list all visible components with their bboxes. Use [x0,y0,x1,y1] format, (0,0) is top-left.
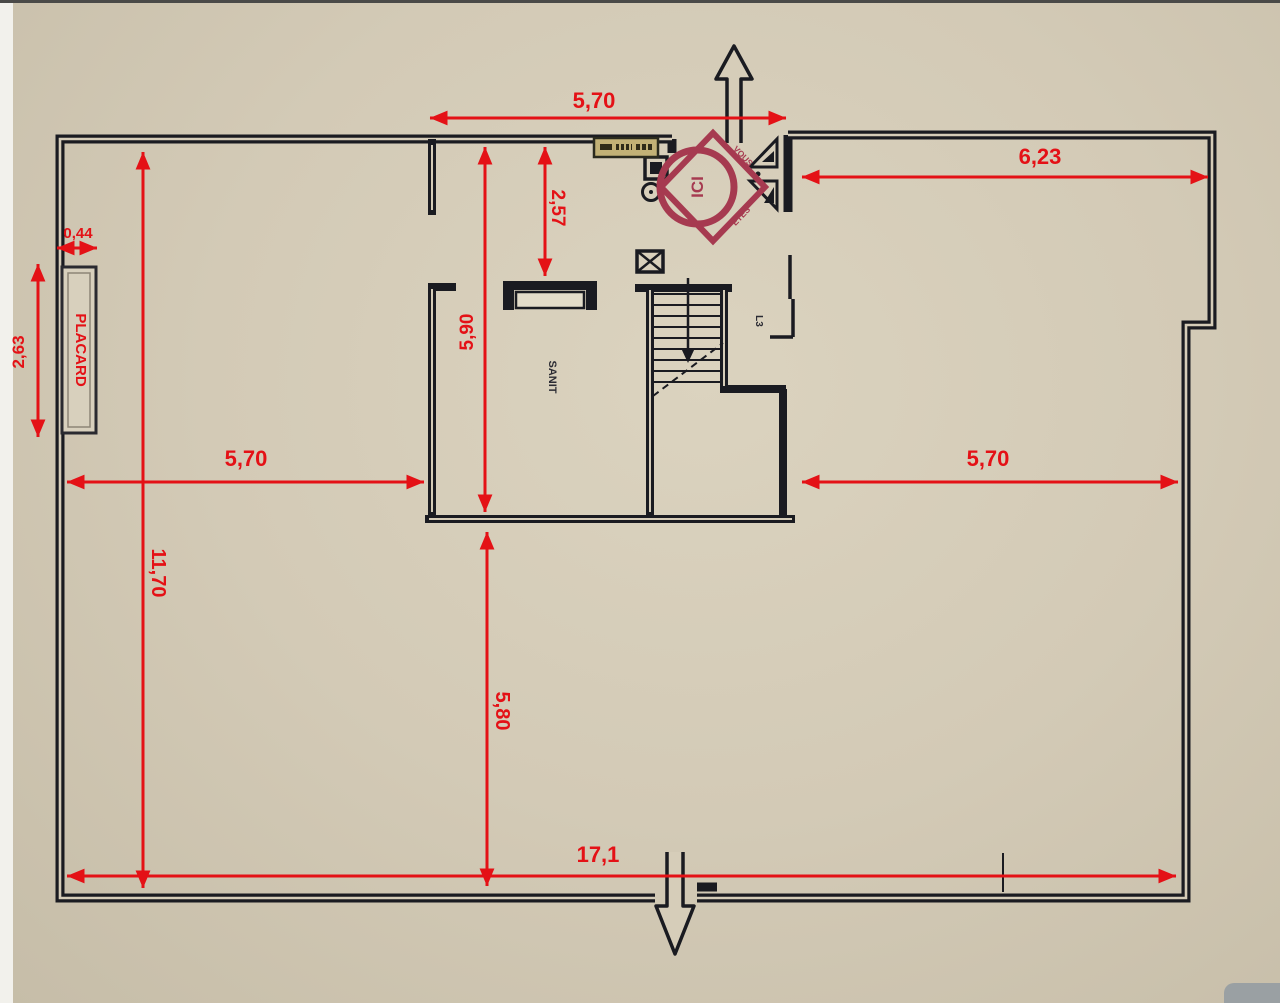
floor-plan-drawing: ICI VOUS ÊTES SANIT L3 PLACARD 5,70 6,23… [0,0,1280,1003]
shaft-x-box-icon [637,251,663,272]
interior-wall-dark [425,139,795,519]
floor-plan-photo: ICI VOUS ÊTES SANIT L3 PLACARD 5,70 6,23… [0,0,1280,1003]
entrance-arrow-up-icon [716,46,752,143]
room-label-l3: L3 [753,315,764,327]
dim-label-left-height: 11,70 [147,549,169,598]
stamp-diamond-icon [661,133,765,241]
staircase [653,278,723,396]
dim-label-placard-height: 2,63 [9,335,28,368]
dim-label-top-width: 5,70 [573,88,616,113]
room-label-placard: PLACARD [72,313,89,386]
dim-label-sanit-height: 5,90 [457,314,478,351]
dim-label-bottom-width: 17,1 [577,842,620,867]
wc-bowl-dot-icon [649,190,653,194]
dim-label-lower-height: 5,80 [491,692,513,731]
entrance-arrow-down-icon [656,852,694,954]
washbasin-bowl [516,292,584,308]
dim-label-left-mid-width: 5,70 [225,446,268,471]
stair-niche-wall [770,255,793,337]
interior-walls [425,139,795,519]
dim-label-upper-right-width: 6,23 [1019,144,1062,169]
dimension-labels: 5,70 6,23 2,57 5,90 0,44 2,63 5,70 5,70 … [9,88,1061,867]
dim-label-placard-depth: 0,44 [63,225,93,242]
room-label-sanit: SANIT [546,361,558,394]
interior-wall-core [429,145,792,519]
dim-label-right-mid-width: 5,70 [967,446,1010,471]
equipment-label-box [594,138,658,157]
dim-label-wc-depth: 2,57 [547,190,568,227]
dimension-lines [38,118,1208,888]
stamp-ici-text: ICI [688,176,707,198]
